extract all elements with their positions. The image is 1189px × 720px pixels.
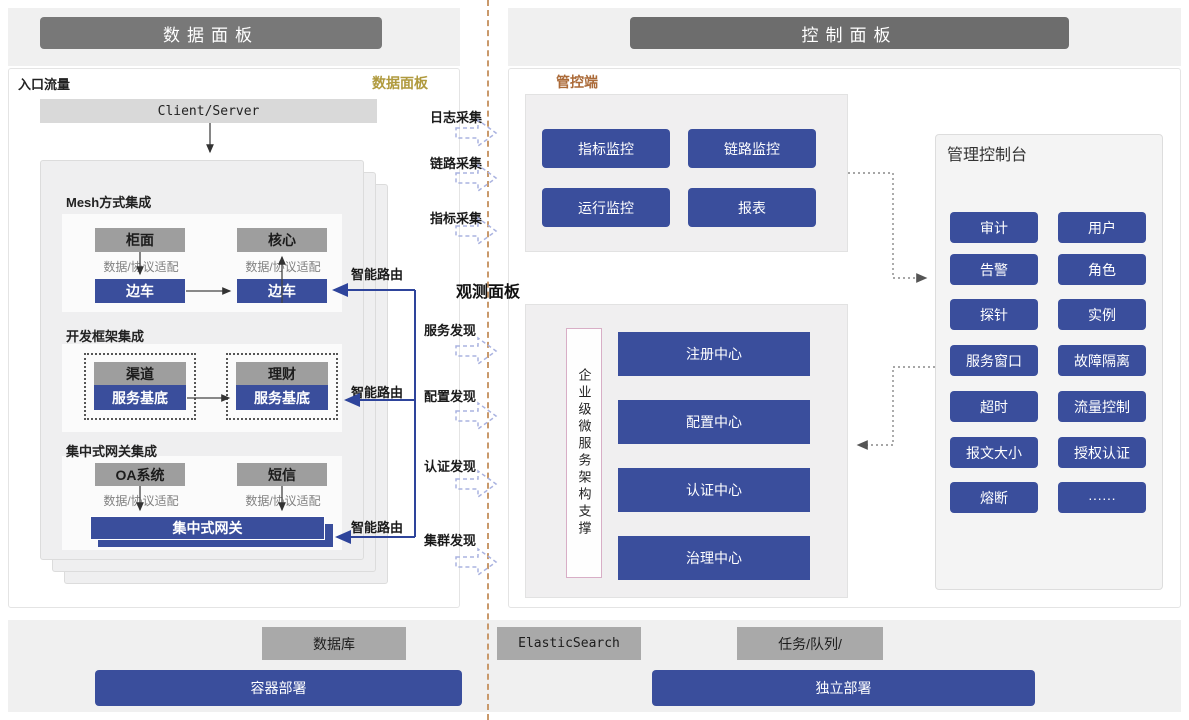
trace-monitor-box: 链路监控 — [688, 129, 816, 168]
cluster-discovery-label: 集群发现 — [424, 530, 476, 549]
channel-box: 渠道 — [94, 362, 186, 385]
config-center-box: 配置中心 — [618, 400, 810, 444]
adapter-label-mesh-right: 数据/协议适配 — [235, 258, 331, 275]
framework-section-title: 开发框架集成 — [66, 326, 144, 345]
registry-center-box: 注册中心 — [618, 332, 810, 376]
gateway-section-title: 集中式网关集成 — [66, 441, 157, 460]
smart-route-label-2: 智能路由 — [351, 382, 403, 401]
dashed-block-arrows — [456, 120, 496, 575]
metric-monitor-box: 指标监控 — [542, 129, 670, 168]
auth-discovery-label: 认证发现 — [424, 456, 476, 475]
service-base-box-right: 服务基底 — [236, 385, 328, 410]
trace-collect-label: 链路采集 — [430, 153, 482, 172]
container-deploy-box: 容器部署 — [95, 670, 462, 706]
metric-collect-label: 指标采集 — [430, 208, 482, 227]
timeout-box: 超时 — [950, 391, 1038, 422]
message-size-box: 报文大小 — [950, 437, 1038, 468]
data-plane-tag: 数据面板 — [372, 73, 428, 93]
service-base-box-left: 服务基底 — [94, 385, 186, 410]
enterprise-support-vertical-box: 企业级微服务架构支撑 — [566, 328, 602, 578]
counter-box: 柜面 — [95, 228, 185, 252]
more-ellipsis-box: ······ — [1058, 482, 1146, 513]
wealth-box: 理财 — [236, 362, 328, 385]
oa-system-box: OA系统 — [95, 463, 185, 486]
data-panel-title: 数据面板 — [40, 17, 382, 49]
circuit-breaker-box: 熔断 — [950, 482, 1038, 513]
standalone-deploy-box: 独立部署 — [652, 670, 1035, 706]
log-collect-label: 日志采集 — [430, 107, 482, 126]
auth-center-box: 认证中心 — [618, 468, 810, 512]
authz-auth-box: 授权认证 — [1058, 437, 1146, 468]
adapter-label-gw-right: 数据/协议适配 — [235, 492, 331, 509]
core-box: 核心 — [237, 228, 327, 252]
role-box: 角色 — [1058, 254, 1146, 285]
ingress-traffic-label: 入口流量 — [18, 74, 70, 93]
sidecar-box-right: 边车 — [237, 279, 327, 303]
sms-box: 短信 — [237, 463, 327, 486]
config-discovery-label: 配置发现 — [424, 386, 476, 405]
user-box: 用户 — [1058, 212, 1146, 243]
task-queue-box: 任务/队列/ — [737, 627, 883, 660]
control-panel-title: 控制面板 — [630, 17, 1069, 49]
panel-separator-line — [487, 0, 489, 720]
instance-box: 实例 — [1058, 299, 1146, 330]
mesh-section-title: Mesh方式集成 — [66, 192, 151, 211]
central-gateway-bar: 集中式网关 — [90, 516, 325, 540]
enterprise-support-vertical-label: 企业级微服务架构支撑 — [575, 368, 594, 538]
alert-box: 告警 — [950, 254, 1038, 285]
smart-route-label-3: 智能路由 — [351, 517, 403, 536]
database-box: 数据库 — [262, 627, 406, 660]
service-discovery-label: 服务发现 — [424, 320, 476, 339]
management-console-title: 管理控制台 — [947, 141, 1027, 165]
probe-box: 探针 — [950, 299, 1038, 330]
adapter-label-gw-left: 数据/协议适配 — [93, 492, 189, 509]
flow-control-box: 流量控制 — [1058, 391, 1146, 422]
elasticsearch-box: ElasticSearch — [497, 627, 641, 660]
audit-box: 审计 — [950, 212, 1038, 243]
client-server-box: Client/Server — [40, 99, 377, 123]
governance-center-box: 治理中心 — [618, 536, 810, 580]
monitoring-panel — [525, 94, 848, 252]
observe-panel-label: 观测面板 — [456, 278, 520, 302]
service-window-box: 服务窗口 — [950, 345, 1038, 376]
adapter-label-mesh-left: 数据/协议适配 — [93, 258, 189, 275]
smart-route-label-1: 智能路由 — [351, 264, 403, 283]
control-end-tag: 管控端 — [556, 72, 598, 92]
sidecar-box-left: 边车 — [95, 279, 185, 303]
architecture-diagram: 数据面板 控制面板 入口流量 数据面板 Client/Server Mesh方式… — [0, 0, 1189, 720]
fault-isolation-box: 故障隔离 — [1058, 345, 1146, 376]
report-box: 报表 — [688, 188, 816, 227]
runtime-monitor-box: 运行监控 — [542, 188, 670, 227]
